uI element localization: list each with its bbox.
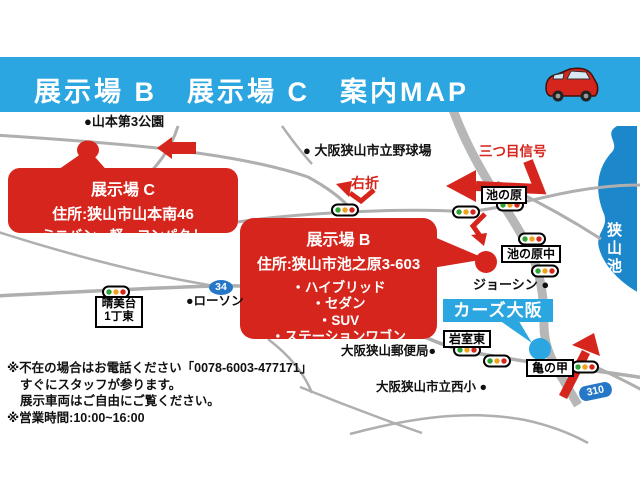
callout-b: 展示場 B 住所:狭山市池之原3-603 ・ハイブリッド ・セダン ・SUV ・…	[240, 226, 437, 346]
traffic-light-icon	[572, 362, 598, 373]
traffic-light-icon	[519, 234, 545, 245]
callout-b-address: 住所:狭山市池之原3-603	[240, 253, 437, 274]
label-yamamoto-park: ●山本第3公園	[84, 115, 164, 128]
label-joshin: ジョーシン ●	[473, 278, 549, 291]
callout-c-cars: ミニバン・軽・コンパクト	[8, 228, 238, 244]
harumidai-line2: 1丁東	[97, 311, 141, 324]
traffic-light-icon	[532, 266, 558, 277]
label-post-office: 大阪狭山郵便局●	[341, 345, 436, 358]
place-box-kamenoko: 亀の甲	[526, 359, 574, 377]
guide-map-page: 展示場 B 展示場 C 案内MAP ●山本第3公園 ● 大阪狭山市立野球場 三つ…	[0, 0, 640, 480]
cars-osaka-tag: カーズ大阪	[443, 299, 553, 322]
site-c-marker	[77, 141, 99, 160]
page-title: 展示場 B 展示場 C 案内MAP	[34, 70, 469, 109]
site-b-marker	[475, 251, 497, 273]
note-line: 展示車両はご自由にご覧ください。	[7, 393, 312, 410]
label-baseball-field: ● 大阪狭山市立野球場	[303, 144, 431, 157]
note-line: ※営業時間:10:00~16:00	[7, 410, 312, 427]
label-sayama-lake: 狭山池	[603, 222, 624, 276]
route-34-shield: 34	[209, 280, 233, 295]
cars-osaka-marker	[529, 338, 551, 360]
callout-b-car-type: ・ハイブリッド	[240, 280, 437, 296]
label-right-turn: 右折	[351, 176, 379, 190]
callout-b-car-type: ・ステーションワゴン	[240, 329, 437, 345]
place-box-ikenohara-naka: 池の原中	[501, 245, 561, 263]
place-box-ikenohara: 池の原	[481, 186, 527, 204]
label-lawson: ●ローソン	[186, 295, 244, 308]
harumidai-line1: 晴美台	[97, 298, 141, 311]
callout-b-title: 展示場 B	[240, 226, 437, 250]
label-nishi-elementary: 大阪狭山市立西小 ●	[376, 381, 487, 394]
callout-b-car-type: ・SUV	[240, 313, 437, 329]
callout-c-address: 住所:狭山市山本南46	[8, 203, 238, 224]
note-line: ※不在の場合はお電話ください「0078-6003-477171」	[7, 360, 312, 377]
traffic-light-icon	[453, 207, 479, 218]
label-third-signal: 三つ目信号	[479, 145, 547, 159]
zigzag-arrow	[471, 214, 487, 246]
traffic-light-icon	[332, 205, 358, 216]
place-box-iwamuro-higashi: 岩室東	[443, 330, 491, 348]
notes-block: ※不在の場合はお電話ください「0078-6003-477171」 すぐにスタッフ…	[7, 360, 312, 426]
traffic-light-icon	[484, 356, 510, 367]
place-box-harumidai: 晴美台 1丁東	[95, 296, 143, 328]
car-icon	[540, 62, 604, 108]
callout-c-title: 展示場 C	[8, 176, 238, 200]
callout-c: 展示場 C 住所:狭山市山本南46 ミニバン・軽・コンパクト	[8, 176, 238, 244]
note-line: すぐにスタッフが参ります。	[7, 377, 312, 394]
callout-b-car-type: ・セダン	[240, 296, 437, 312]
